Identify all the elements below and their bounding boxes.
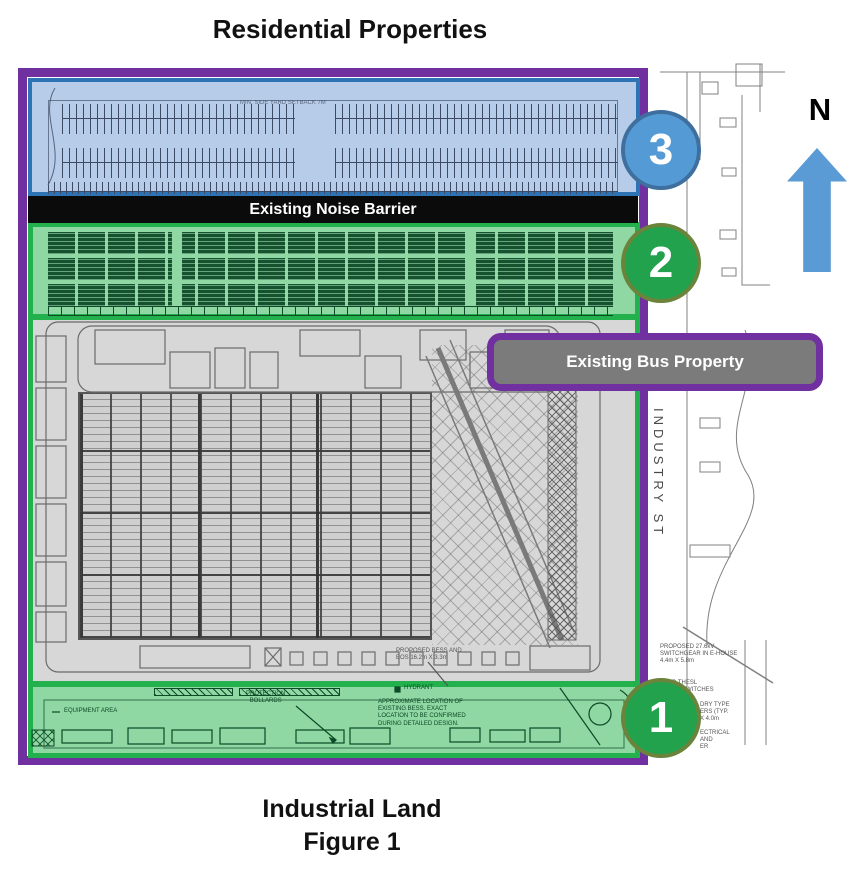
bus-stall-band <box>48 284 613 306</box>
parking-row <box>48 182 618 194</box>
residential-properties-title: Residential Properties <box>0 14 700 45</box>
parking-row <box>335 104 618 134</box>
hydrant-note: HYDRANT <box>404 685 433 692</box>
switchgear-note: PROPOSED 27.6kV SWITCHGEAR IN E-HOUSE 4.… <box>660 644 778 666</box>
parking-row <box>335 148 618 178</box>
industrial-land-label: Industrial Land <box>0 795 704 824</box>
parking-row <box>62 104 295 134</box>
electrical-note: ECTRICAL AND ER <box>700 730 818 752</box>
figure-canvas: Residential Properties MIN. SIDE YARD SE… <box>0 0 851 873</box>
bess-note: PROPOSED BESS AND BOS 16.2m X 3.3m <box>396 648 462 662</box>
north-arrow-icon <box>787 148 847 272</box>
north-label: N <box>795 92 845 128</box>
green-boundary-line <box>33 681 635 687</box>
zone-1-marker: 1 <box>621 678 701 758</box>
bus-storage-grid <box>78 392 432 640</box>
zone-2-marker: 2 <box>621 223 701 303</box>
noise-barrier-band: Existing Noise Barrier <box>28 196 638 223</box>
figure-number-label: Figure 1 <box>0 828 704 857</box>
transformers-note: DRY TYPE ERS (TYP. X 4.0m <box>700 702 818 724</box>
zone-2-number: 2 <box>649 238 673 288</box>
existing-bus-property-label: Existing Bus Property <box>487 333 823 391</box>
bollards-note: PROTECTION BOLLARDS <box>246 691 285 705</box>
industry-street-label: INDUSTRY ST <box>651 408 666 588</box>
setback-note: MIN. SIDE YARD SETBACK 7M <box>240 100 326 107</box>
bus-stall-band <box>48 258 613 280</box>
equipment-area-note: EQUIPMENT AREA <box>64 708 117 715</box>
approx-location-note: APPROXIMATE LOCATION OF EXISTING BESS. E… <box>378 699 466 728</box>
parking-row <box>62 148 295 178</box>
stall-equipment-row <box>48 306 613 316</box>
stall-aisle <box>172 232 182 306</box>
bus-property-label-text: Existing Bus Property <box>566 352 744 372</box>
noise-barrier-label: Existing Noise Barrier <box>249 201 416 219</box>
hatched-strip <box>154 688 233 696</box>
zone-3-number: 3 <box>649 125 673 175</box>
bus-stall-band <box>48 232 613 254</box>
zone-1-number: 1 <box>649 693 673 743</box>
zone-3-marker: 3 <box>621 110 701 190</box>
stall-aisle <box>466 232 476 306</box>
